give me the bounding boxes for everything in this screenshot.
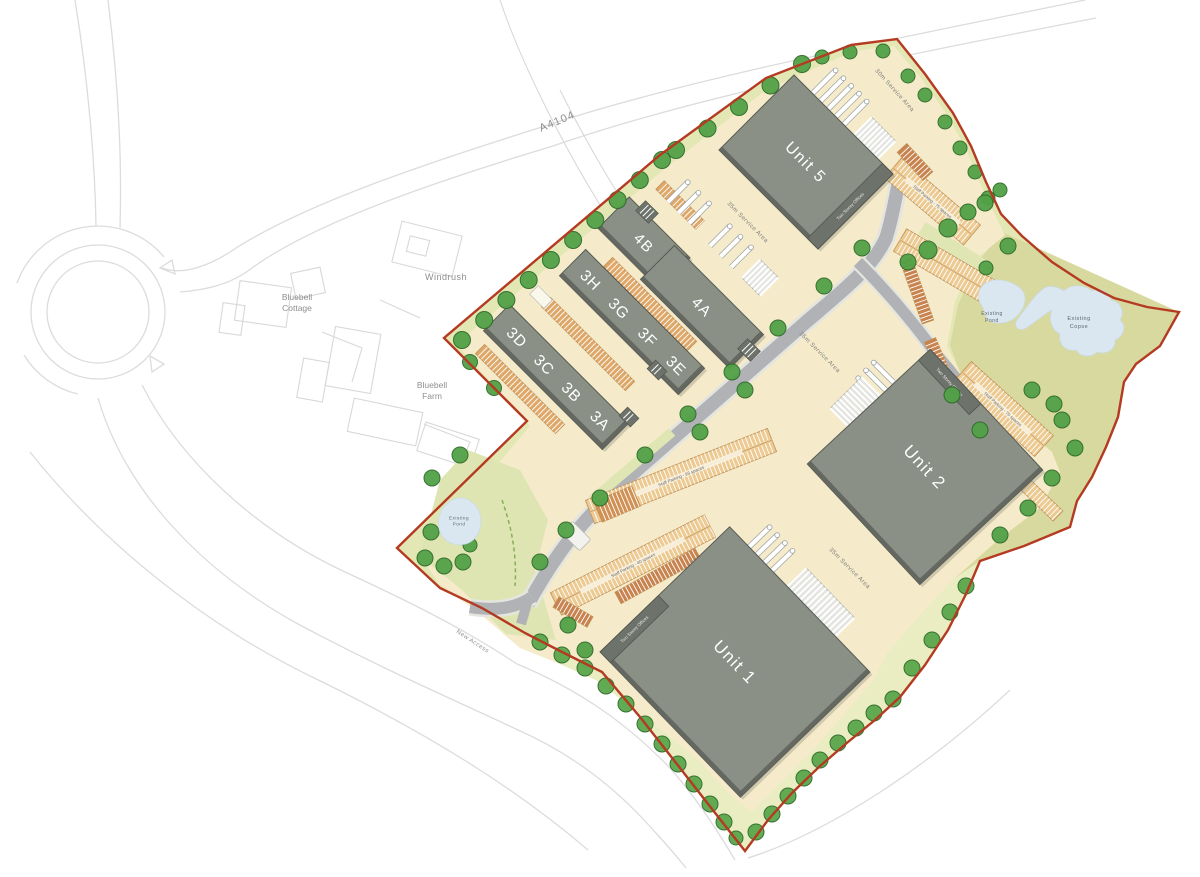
svg-text:Bluebell: Bluebell [282,292,312,302]
svg-text:Cottage: Cottage [282,303,312,313]
svg-text:Existing: Existing [1067,316,1090,322]
svg-text:Farm: Farm [422,391,442,401]
svg-text:Windrush: Windrush [425,272,467,282]
svg-text:Existing: Existing [981,311,1003,317]
svg-text:Pond: Pond [453,522,466,527]
svg-text:Bluebell: Bluebell [417,380,447,390]
svg-text:Existing: Existing [449,516,469,521]
svg-text:Pond: Pond [985,318,999,324]
svg-text:Copse: Copse [1070,324,1088,330]
